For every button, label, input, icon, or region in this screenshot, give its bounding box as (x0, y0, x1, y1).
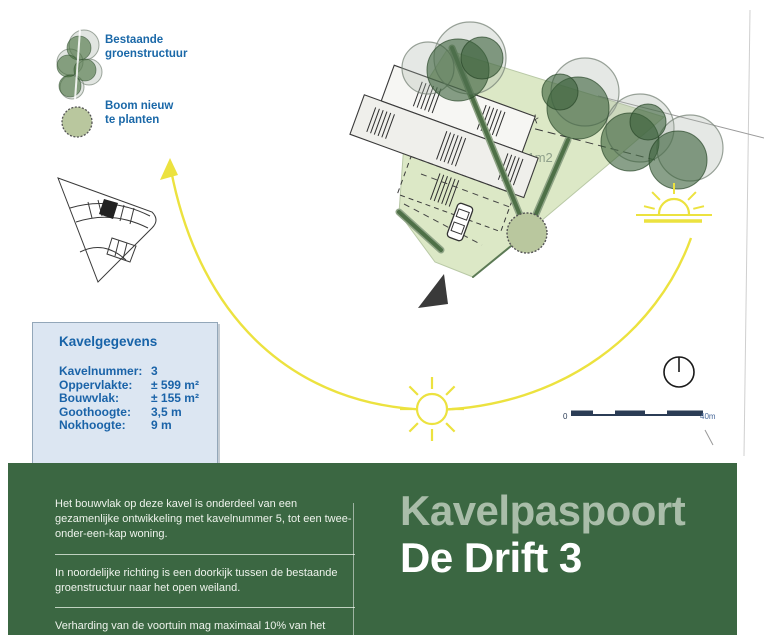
banner-paragraph: Het bouwvlak op deze kavel is onderdeel … (55, 497, 355, 543)
row-label: Kavelnummer: (59, 365, 151, 379)
row-label: Bouwvlak: (59, 392, 151, 406)
kavelgegevens-box: Kavelgegevens Kavelnummer: 3 Oppervlakte… (32, 322, 218, 472)
banner-vertical-divider (353, 503, 354, 635)
row-value: ± 155 m² (151, 392, 199, 406)
entrance-arrow (418, 274, 448, 308)
locator-map (58, 178, 156, 282)
row-value: 9 m (151, 419, 199, 433)
north-compass-icon (664, 357, 694, 387)
sun-icon (400, 377, 464, 441)
new-tree (507, 213, 547, 253)
divider (55, 607, 355, 608)
row-label: Oppervlakte: (59, 379, 151, 393)
banner-titles: Kavelpaspoort De Drift 3 (400, 487, 685, 581)
banner-text-column: Het bouwvlak op deze kavel is onderdeel … (55, 497, 355, 634)
row-label: Goothoogte: (59, 406, 151, 420)
sunrise-icon (636, 183, 712, 221)
row-value: 3 (151, 365, 199, 379)
kavelgegevens-title: Kavelgegevens (59, 334, 157, 349)
document-type-title: Kavelpaspoort (400, 487, 685, 534)
row-value: 3,5 m (151, 406, 199, 420)
banner: Het bouwvlak op deze kavel is onderdeel … (8, 463, 737, 635)
banner-paragraph: In noordelijke richting is een doorkijk … (55, 566, 355, 596)
banner-paragraph: Verharding van de voortuin mag maximaal … (55, 619, 355, 634)
row-label: Nokhoogte: (59, 419, 151, 433)
plot-name-title: De Drift 3 (400, 534, 685, 581)
legend-existing-green-icon (57, 30, 102, 100)
row-value: ± 599 m² (151, 379, 199, 393)
kavelgegevens-rows: Kavelnummer: 3 Oppervlakte: ± 599 m² Bou… (59, 365, 199, 433)
legend-existing-green-label: Bestaande groenstructuur (105, 33, 187, 62)
scale-bar: 0 40m (563, 411, 716, 446)
legend-new-tree-icon (62, 107, 92, 137)
sun-path-arrowhead (160, 158, 178, 180)
divider (55, 554, 355, 555)
kavelpaspoort-page: Lijn groenstrook 591m2 (0, 0, 764, 635)
legend-new-tree-label: Boom nieuw te planten (105, 99, 173, 128)
page-edge-line (744, 10, 750, 456)
scan-mark (705, 430, 713, 445)
scale-bar-start-label: 0 (563, 412, 568, 421)
scale-bar-end-label: 40m (700, 412, 716, 421)
